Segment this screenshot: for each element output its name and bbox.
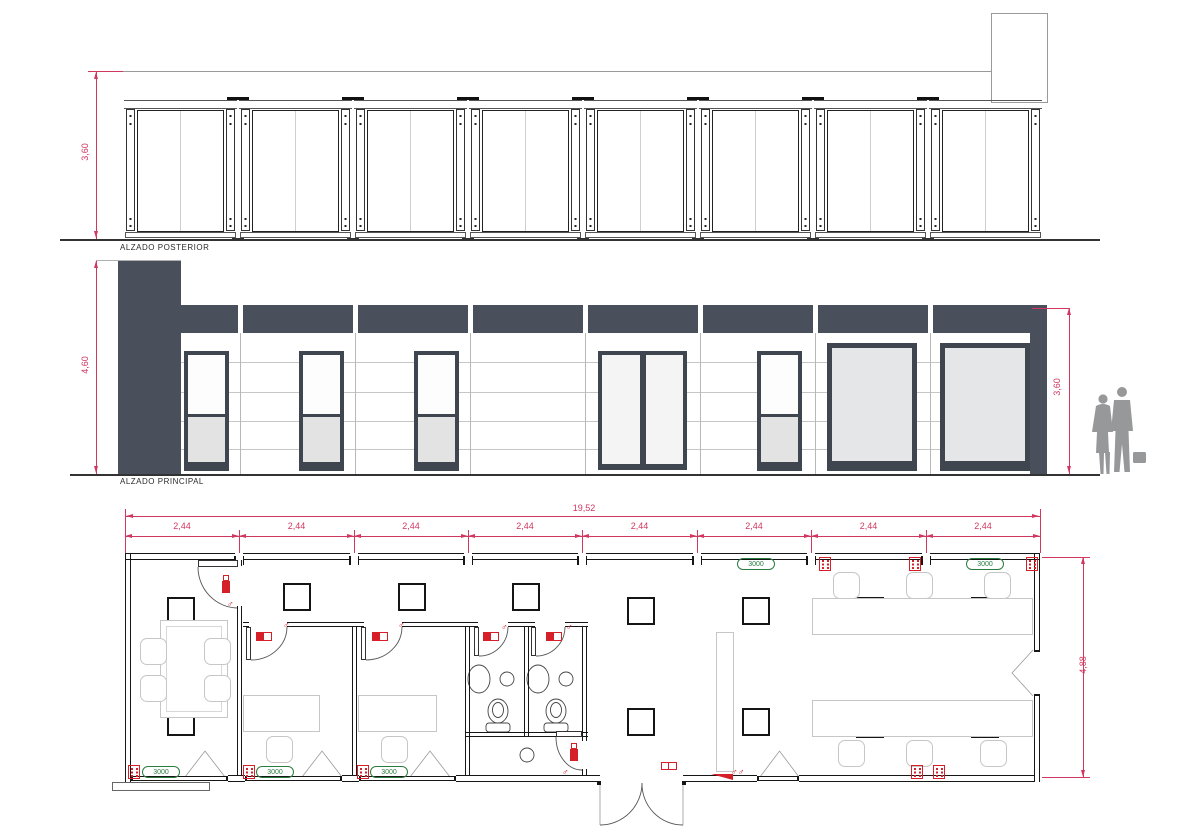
- plan-chair: [140, 675, 167, 702]
- plan-dim-mark: [919, 534, 926, 538]
- front-window-panel: [188, 417, 225, 462]
- front-fascia: [181, 305, 1047, 333]
- rear-module-base-rail: [355, 232, 466, 238]
- rear-module-base-rail: [470, 232, 581, 238]
- rear-module-top-rail: [929, 100, 1042, 109]
- front-window-panel: [418, 417, 455, 462]
- plan-dim-arrow: [1081, 557, 1085, 564]
- rear-module-top-rail: [814, 100, 927, 109]
- architectural-drawing-sheet: ALZADO POSTERIOR ALZADO PRINCIPAL 3,60 4…: [0, 0, 1200, 835]
- plan-joint-notch-line: [692, 556, 694, 565]
- doormat-icon: [711, 774, 733, 780]
- plan-door-hinge: [682, 781, 686, 785]
- male-door-symbol: ♂: [566, 622, 576, 632]
- plan-joint-notch-line: [806, 556, 808, 565]
- male-door-symbol: ♂: [562, 767, 572, 777]
- front-elevation-title: ALZADO PRINCIPAL: [120, 477, 204, 486]
- plan-chair: [980, 740, 1007, 767]
- plan-dim-mark: [575, 534, 582, 538]
- rear-module-top-rail: [699, 100, 812, 109]
- plan-joint-notch-line: [815, 556, 817, 565]
- front-facade-joint-line-v: [470, 333, 471, 474]
- extinguisher-icon-body: [222, 581, 230, 593]
- front-fascia-gap: [238, 305, 243, 333]
- rear-module-post: [456, 109, 465, 231]
- doorway-marker-icon: [661, 762, 669, 770]
- rear-module-top-rail: [354, 100, 467, 109]
- plan-total-width-dimension: 19,52: [562, 503, 606, 513]
- rear-module-base-rail: [700, 232, 811, 238]
- plan-dim-mark: [239, 534, 246, 538]
- plan-joint-notch-line: [463, 556, 465, 565]
- rear-module-base-rail: [585, 232, 696, 238]
- male-door-symbol: ♂: [227, 599, 237, 609]
- front-window-glazing: [303, 355, 340, 414]
- plan-dim-extension: [697, 530, 698, 553]
- plan-dim-mark: [582, 534, 589, 538]
- rear-joint-dash: [687, 97, 709, 100]
- radiator-icon: [357, 765, 369, 779]
- rear-module-top-rail: [124, 100, 237, 109]
- rear-module-base-rail: [815, 232, 926, 238]
- rear-module-panel: [712, 110, 799, 232]
- plan-joint-notch-line: [921, 556, 923, 565]
- plan-column: [742, 708, 770, 736]
- plan-partition: [582, 627, 587, 737]
- front-fascia-gap: [928, 305, 933, 333]
- plan-dim-mark: [468, 534, 475, 538]
- rear-module-panel: [367, 110, 454, 232]
- plan-door-leaf: [531, 627, 536, 656]
- radiator-icon: [1026, 557, 1038, 571]
- plan-partition: [352, 627, 357, 775]
- plan-module-width-label: 2,44: [162, 521, 202, 531]
- front-facade-joint-line-v: [815, 333, 816, 474]
- radiator-icon: [909, 557, 921, 571]
- rear-module-post: [126, 109, 135, 231]
- rear-module-post: [471, 109, 480, 231]
- plan-dim-mark: [125, 534, 132, 538]
- plan-column: [742, 597, 770, 625]
- rear-module-top-rail: [584, 100, 697, 109]
- front-dim-arrow: [94, 261, 98, 268]
- heater-icon-solid: [372, 632, 379, 641]
- rear-roof-line: [123, 71, 991, 72]
- plan-door-leaf: [556, 731, 582, 737]
- plan-door-hinge: [597, 781, 601, 785]
- rear-elevation-title: ALZADO POSTERIOR: [120, 243, 209, 252]
- rear-module-post: [226, 109, 235, 231]
- rear-module-base-rail: [930, 232, 1041, 238]
- window-vent-label: 3000: [966, 558, 1004, 570]
- front-dim-line-right: [1069, 308, 1070, 474]
- plan-dim-depth-tick: [1042, 557, 1090, 558]
- plan-dim-extension: [239, 530, 240, 553]
- plan-door-leaf: [246, 627, 251, 660]
- plan-joint-notch-line: [349, 556, 351, 565]
- rear-module-panel: [597, 110, 684, 232]
- plan-partition: [237, 606, 242, 775]
- sanitary-fixtures: [468, 665, 573, 762]
- plan-dim-mark: [690, 534, 697, 538]
- plan-module-width-label: 2,44: [391, 521, 431, 531]
- plan-dim-mark: [461, 534, 468, 538]
- front-facade-joint-line-v: [930, 333, 931, 474]
- rear-ground-line: [60, 239, 1100, 241]
- radiator-icon: [819, 557, 831, 571]
- plan-module-width-label: 2,44: [620, 521, 660, 531]
- front-facade-joint-line-v: [355, 333, 356, 474]
- male-door-symbol: ♂: [283, 620, 293, 630]
- front-dim-tick-right: [1032, 308, 1070, 309]
- plan-desk: [812, 700, 1033, 737]
- plan-dim-mark: [926, 534, 933, 538]
- front-fascia-gap: [813, 305, 818, 333]
- rear-dim-arrow-top: [94, 72, 98, 79]
- plan-chair: [266, 736, 293, 763]
- plan-dim-mark: [1033, 534, 1040, 538]
- rear-joint-dash: [572, 97, 594, 100]
- front-fascia-gap: [698, 305, 703, 333]
- front-large-window-glazing: [945, 348, 1025, 461]
- heater-icon-outline: [553, 632, 562, 641]
- rear-module-top-rail: [239, 100, 352, 109]
- plan-dim-extension: [468, 530, 469, 553]
- rear-joint-dash: [457, 97, 479, 100]
- plan-module-width-label: 2,44: [963, 521, 1003, 531]
- plan-chair: [381, 736, 408, 763]
- front-dim-arrow: [1067, 308, 1071, 315]
- plan-dim-mark: [347, 534, 354, 538]
- rear-module-base-rail: [125, 232, 236, 238]
- plan-window-right-wall: [1034, 650, 1040, 696]
- rear-module-post: [801, 109, 810, 231]
- rear-module-panel: [137, 110, 224, 232]
- front-facade-joint-line-v: [700, 333, 701, 474]
- plan-chair: [984, 572, 1011, 599]
- front-facade-joint-line-v: [585, 333, 586, 474]
- plan-partition: [524, 627, 529, 737]
- window-vent-label: 3000: [737, 558, 775, 570]
- front-window-glazing: [188, 355, 225, 414]
- front-pylon-dim-tick: [96, 260, 181, 261]
- plan-module-width-label: 2,44: [277, 521, 317, 531]
- rear-module-panel: [827, 110, 914, 232]
- heater-icon-solid: [256, 632, 263, 641]
- front-left-height-dimension: 4,60: [80, 350, 90, 380]
- plan-wall-bottom: [456, 775, 468, 782]
- plan-chair: [838, 740, 865, 767]
- plan-dim-arrow: [126, 514, 133, 518]
- plan-column: [398, 583, 426, 611]
- heater-icon-outline: [490, 632, 499, 641]
- plan-dim-extension: [926, 530, 927, 553]
- rear-module-post: [356, 109, 365, 231]
- front-facade-joint-line-v: [240, 333, 241, 474]
- front-window-panel: [303, 417, 340, 462]
- plan-dim-extension: [811, 530, 812, 553]
- rear-module-post: [931, 109, 940, 231]
- plan-dim-mark: [804, 534, 811, 538]
- rear-sign-box: [991, 13, 1048, 103]
- plan-chair: [140, 638, 167, 665]
- rear-module-panel: [482, 110, 569, 232]
- window-vent-label: 3000: [142, 766, 180, 778]
- plan-wall-left: [125, 553, 131, 782]
- plan-chair: [906, 572, 933, 599]
- rear-dim-line: [96, 72, 97, 239]
- plan-dim-depth-line: [1083, 557, 1084, 778]
- plan-dim-arrow: [1032, 514, 1039, 518]
- front-window-glazing: [761, 355, 798, 414]
- plan-joint-notch-line: [930, 556, 932, 565]
- heater-icon-outline: [263, 632, 272, 641]
- plan-partition: [465, 627, 470, 775]
- rear-joint-dash: [342, 97, 364, 100]
- rear-module-post: [686, 109, 695, 231]
- rear-dim-arrow-bottom: [94, 231, 98, 238]
- plan-dim-extension: [1040, 509, 1041, 553]
- plan-wall-bottom: [468, 775, 600, 782]
- plan-joint-notch-line: [358, 556, 360, 565]
- rear-module-post: [816, 109, 825, 231]
- plan-module-width-label: 2,44: [505, 521, 545, 531]
- tilt-turn-symbols: [188, 355, 798, 414]
- plan-module-width-label: 2,44: [849, 521, 889, 531]
- front-window-panel: [761, 417, 798, 462]
- plan-dim-mark: [232, 534, 239, 538]
- plan-dim-arrow: [1081, 770, 1085, 777]
- plan-dim-mark: [697, 534, 704, 538]
- plan-chair: [204, 675, 231, 702]
- front-large-window-glazing: [832, 348, 912, 461]
- plan-joint-notch-line: [577, 556, 579, 565]
- extinguisher-icon-body: [570, 749, 578, 761]
- front-fascia-gap: [468, 305, 473, 333]
- plan-dim-extension: [125, 509, 126, 553]
- window-vent-label: 3000: [256, 766, 294, 778]
- plan-dim-extension: [582, 530, 583, 553]
- plan-module-width-label: 2,44: [734, 521, 774, 531]
- plan-column: [627, 597, 655, 625]
- plan-chair: [906, 740, 933, 767]
- rear-module-post: [241, 109, 250, 231]
- front-corner-column: [1030, 333, 1047, 474]
- plan-joint-notch-line: [701, 556, 703, 565]
- front-dim-arrow: [94, 466, 98, 473]
- plan-desk: [812, 598, 1033, 635]
- plan-dim-depth-tick: [1042, 777, 1090, 778]
- plan-column: [627, 708, 655, 736]
- rear-module-panel: [942, 110, 1029, 232]
- rear-module-top-rail: [469, 100, 582, 109]
- plan-joint-notch-line: [586, 556, 588, 565]
- front-dim-line-left: [96, 261, 97, 474]
- plan-chair: [204, 638, 231, 665]
- radiator-icon: [933, 765, 945, 779]
- plan-joint-notch-line: [243, 556, 245, 565]
- people-silhouette: [1092, 387, 1146, 474]
- plan-partition: [582, 769, 587, 775]
- rear-module-post: [341, 109, 350, 231]
- rear-module-post: [916, 109, 925, 231]
- heater-icon-outline: [379, 632, 388, 641]
- rear-module-post: [571, 109, 580, 231]
- rear-joint-dash: [227, 97, 249, 100]
- front-right-height-dimension: 3,60: [1052, 372, 1062, 402]
- plan-door-leaf: [198, 560, 238, 567]
- heater-icon-solid: [483, 632, 490, 641]
- male-door-symbol-pair: ♂♂: [731, 767, 749, 777]
- plan-dim-extension: [354, 530, 355, 553]
- plan-chair: [833, 572, 860, 599]
- plan-door-leaf: [474, 627, 479, 656]
- radiator-icon: [911, 765, 923, 779]
- front-door-leaf: [646, 355, 683, 464]
- rear-joint-dash: [802, 97, 824, 100]
- rear-module-post: [586, 109, 595, 231]
- radiator-icon: [128, 765, 140, 779]
- front-fascia-gap: [583, 305, 588, 333]
- male-door-symbol: ♂: [398, 620, 408, 630]
- rear-module-panel: [252, 110, 339, 232]
- rear-module-base-rail: [240, 232, 351, 238]
- plan-partition: [582, 737, 587, 741]
- plan-exterior-step: [112, 782, 210, 791]
- heater-icon-solid: [546, 632, 553, 641]
- front-ground-line: [70, 474, 1100, 476]
- front-pylon: [118, 261, 181, 474]
- plan-desk: [716, 632, 734, 772]
- window-vent-label: 3000: [370, 766, 408, 778]
- plan-desk: [358, 695, 437, 732]
- front-window-glazing: [418, 355, 455, 414]
- front-dim-arrow: [1067, 466, 1071, 473]
- rear-joint-dash: [917, 97, 939, 100]
- rear-height-dimension: 3,60: [80, 137, 90, 167]
- rear-module-post: [1031, 109, 1040, 231]
- radiator-icon: [243, 765, 255, 779]
- rear-module-post: [701, 109, 710, 231]
- plan-door-leaf: [361, 627, 366, 660]
- front-fascia-gap: [353, 305, 358, 333]
- plan-dim-total-line: [125, 516, 1040, 517]
- front-door-leaf: [602, 355, 640, 464]
- plan-dim-mark: [354, 534, 361, 538]
- male-door-symbol: ♂: [501, 622, 511, 632]
- plan-column: [283, 583, 311, 611]
- plan-window-bottom: [757, 776, 799, 781]
- plan-joint-notch-line: [472, 556, 474, 565]
- plan-desk: [243, 695, 320, 732]
- plan-dim-mark: [811, 534, 818, 538]
- plan-column: [512, 583, 540, 611]
